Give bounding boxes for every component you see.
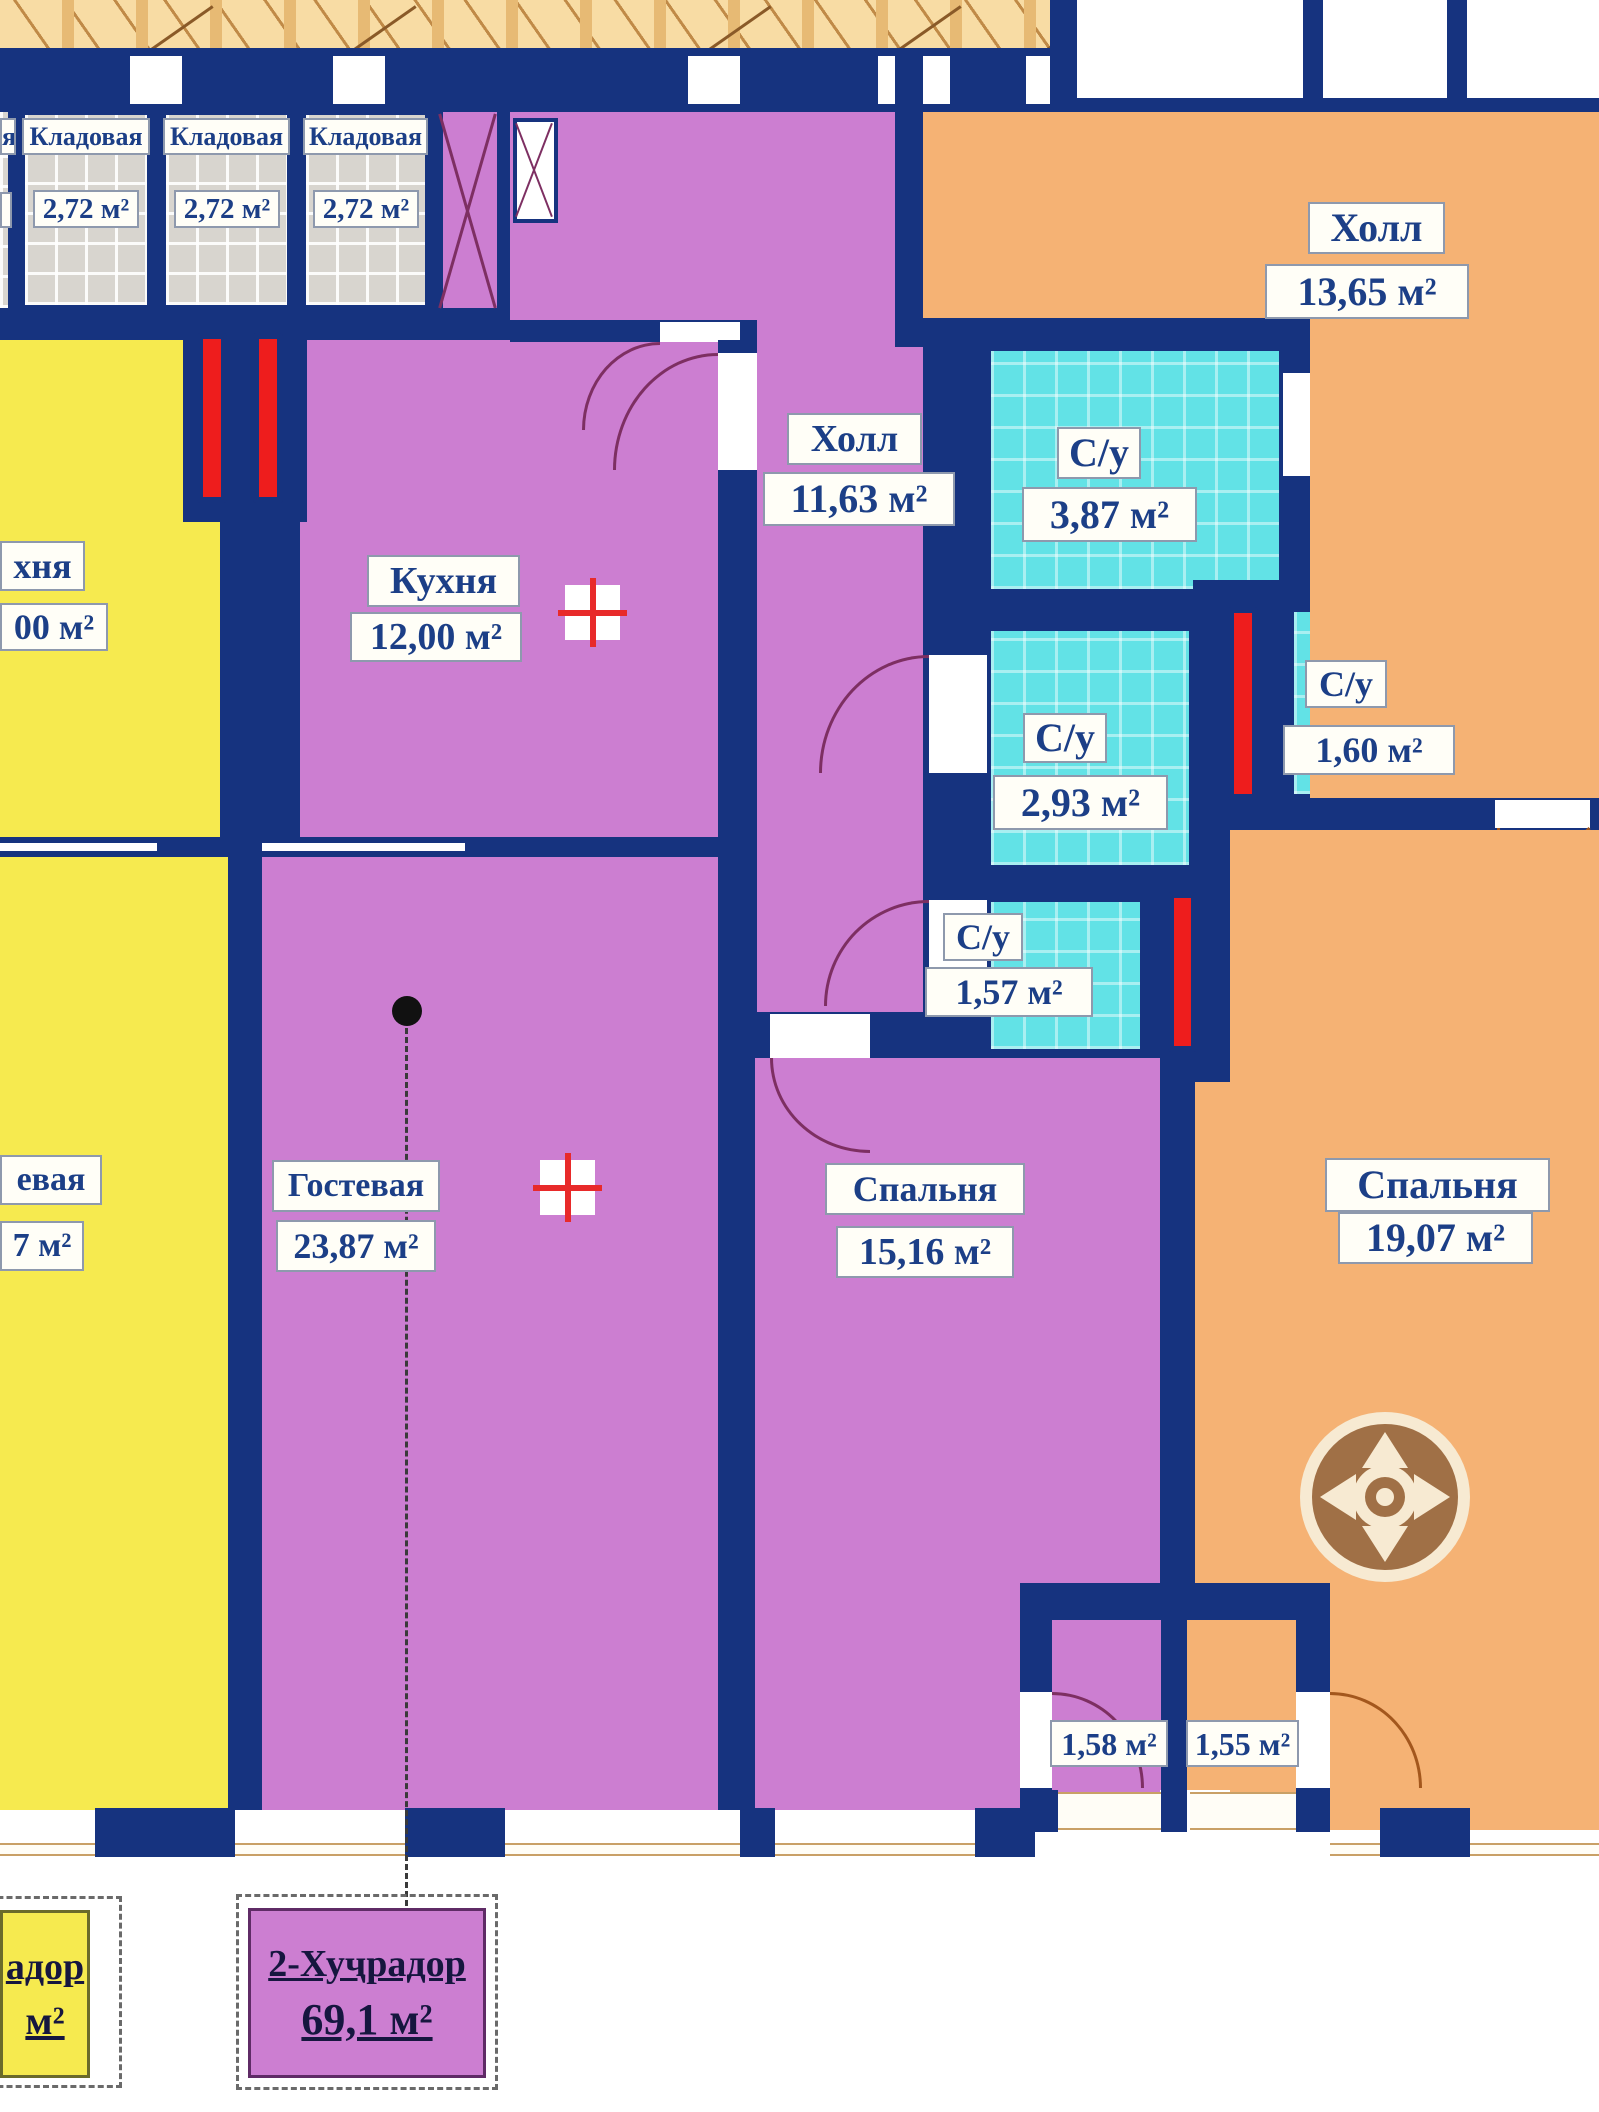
- room-label: Холл: [787, 413, 922, 465]
- common-corridor: [0, 0, 1050, 48]
- room-label: С/у: [943, 913, 1023, 961]
- room-label: я: [0, 118, 16, 155]
- area-label: 12,00 м²: [350, 612, 522, 662]
- cross-marker-icon: [540, 1160, 595, 1215]
- guest-room: [262, 857, 718, 1810]
- room-label: [0, 192, 12, 228]
- facade-pier: [975, 1808, 1035, 1857]
- facade-window: [0, 1843, 95, 1856]
- facade-pier: [740, 1808, 775, 1857]
- facade-pier: [1380, 1808, 1470, 1857]
- entry-zone: [510, 112, 895, 340]
- wall: [1020, 1583, 1330, 1620]
- wall: [1160, 1082, 1195, 1583]
- wall: [497, 112, 510, 308]
- legend-title: адор: [6, 1945, 84, 1989]
- cross-marker-icon: [565, 585, 620, 640]
- area-label: 00 м²: [0, 603, 108, 651]
- door-opening: [1020, 1692, 1052, 1788]
- vent-shaft-icon: [1228, 607, 1258, 800]
- balcony-window: [1058, 1792, 1161, 1830]
- legend-unit-2: 2-Хуҷрадор 69,1 м²: [248, 1908, 486, 2078]
- window: [262, 840, 465, 854]
- area-label: 19,07 м²: [1338, 1212, 1533, 1264]
- area-label: 2,72 м²: [33, 190, 139, 228]
- reference-dot: [392, 996, 422, 1026]
- door-opening: [660, 322, 740, 342]
- door-opening: [1283, 373, 1310, 476]
- room-label: С/у: [1023, 713, 1107, 763]
- wall: [1303, 0, 1323, 98]
- area-label: 1,58 м²: [1050, 1720, 1168, 1767]
- area-label: 1,57 м²: [925, 967, 1093, 1017]
- wall: [228, 857, 266, 1810]
- wall: [895, 48, 923, 347]
- wall: [718, 340, 757, 1810]
- elevator-shaft: [1467, 0, 1599, 98]
- room-label: хня: [0, 541, 85, 591]
- room-label: Кладовая: [163, 118, 290, 155]
- legend-area: 69,1 м²: [301, 1994, 432, 2045]
- door-opening: [770, 1014, 870, 1058]
- wall: [220, 515, 300, 857]
- area-label: 7 м²: [0, 1221, 84, 1271]
- elevator-shaft: [1077, 0, 1303, 98]
- area-label: 2,93 м²: [993, 775, 1168, 830]
- door-opening: [929, 655, 987, 773]
- yellow-kitchen: [0, 340, 183, 515]
- area-label: 3,87 м²: [1022, 487, 1197, 542]
- yellow-living: [0, 857, 228, 1810]
- wall: [150, 112, 163, 308]
- door-opening: [1495, 800, 1590, 828]
- facade-window: [1470, 1843, 1599, 1856]
- facade-pier: [405, 1808, 505, 1857]
- area-label: 13,65 м²: [1265, 264, 1469, 319]
- room-label: Гостевая: [272, 1160, 440, 1212]
- room-label: С/у: [1305, 660, 1387, 708]
- room-label: Кухня: [367, 555, 520, 607]
- wall: [1447, 0, 1467, 98]
- facade-window: [775, 1843, 975, 1856]
- wall: [290, 112, 303, 308]
- vent-shaft-icon: [1168, 892, 1197, 1052]
- legend-title: 2-Хуҷрадор: [268, 1942, 466, 1986]
- facade-window: [235, 1843, 405, 1856]
- facade-window: [1330, 1843, 1380, 1856]
- area-label: 23,87 м²: [276, 1220, 436, 1272]
- door-opening: [130, 56, 182, 104]
- room-label: Кладовая: [303, 118, 428, 155]
- wall: [1161, 1790, 1187, 1832]
- balcony-window: [1190, 1792, 1296, 1830]
- door-opening: [333, 56, 385, 104]
- compass-icon: [1300, 1412, 1470, 1582]
- facade-window: [505, 1843, 740, 1856]
- room-label: Спальня: [825, 1163, 1025, 1215]
- elevator-shaft: [1323, 0, 1447, 98]
- room-label: Спальня: [1325, 1158, 1550, 1212]
- room-label: Кладовая: [22, 118, 150, 155]
- floor-plan: я Кладовая 2,72 м² Кладовая 2,72 м² Клад…: [0, 0, 1599, 2112]
- area-label: 2,72 м²: [174, 190, 280, 228]
- window: [0, 840, 157, 854]
- area-label: 1,60 м²: [1283, 725, 1455, 775]
- wall: [1050, 0, 1077, 98]
- wall: [1262, 608, 1290, 826]
- legend-area: м²: [25, 1997, 64, 2044]
- room-label: С/у: [1057, 427, 1141, 479]
- door-opening: [688, 56, 740, 104]
- area-label: 2,72 м²: [313, 190, 419, 228]
- bedroom-19-room: [1195, 1082, 1230, 1583]
- facade-pier: [95, 1808, 235, 1857]
- vent-shaft-icon: [197, 333, 227, 503]
- door-opening: [718, 353, 757, 470]
- area-label: 15,16 м²: [836, 1226, 1014, 1278]
- room-label: евая: [0, 1155, 102, 1205]
- legend-unit-left: адор м²: [0, 1910, 90, 2078]
- area-label: 1,55 м²: [1186, 1720, 1299, 1767]
- wall: [1296, 1790, 1330, 1832]
- door-opening: [1296, 1692, 1330, 1788]
- room-label: Холл: [1308, 202, 1445, 254]
- orange-hall-room: [923, 112, 1599, 318]
- wall: [428, 112, 443, 308]
- area-label: 11,63 м²: [763, 472, 955, 526]
- vent-shaft-icon: [253, 333, 283, 503]
